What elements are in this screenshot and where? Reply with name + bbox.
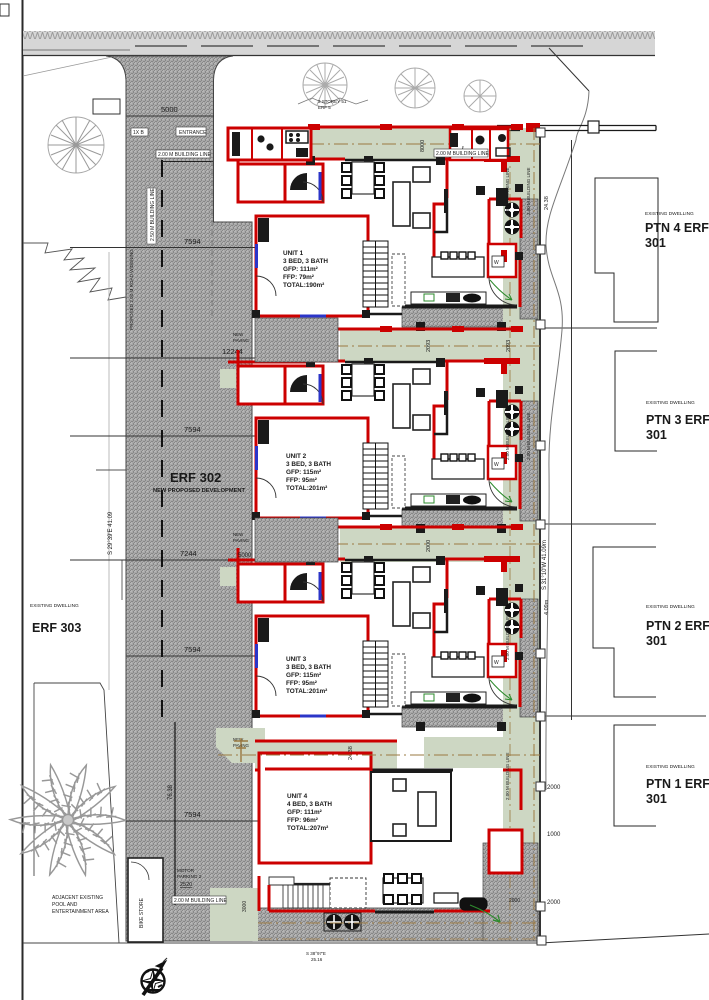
svg-text:3 STOREY 51: 3 STOREY 51 <box>318 99 347 104</box>
svg-text:76.38: 76.38 <box>168 784 174 800</box>
svg-text:TOTAL:190m²: TOTAL:190m² <box>283 282 324 289</box>
svg-text:1000: 1000 <box>547 832 561 838</box>
svg-text:2.00 M BUILDING LINE: 2.00 M BUILDING LINE <box>505 612 510 660</box>
svg-text:PTN 1 ERF: PTN 1 ERF <box>646 777 709 791</box>
svg-text:301: 301 <box>645 236 666 250</box>
svg-text:PARKING 2: PARKING 2 <box>177 874 202 879</box>
svg-text:24.38: 24.38 <box>544 196 550 210</box>
svg-text:3 BED, 3 BATH: 3 BED, 3 BATH <box>283 258 328 265</box>
svg-text:2.00 M BUILDING LINE: 2.00 M BUILDING LINE <box>505 167 510 215</box>
svg-text:3 BED, 3 BATH: 3 BED, 3 BATH <box>286 664 331 671</box>
svg-text:3 BED, 3 BATH: 3 BED, 3 BATH <box>286 461 331 468</box>
svg-text:2.00 M BUILDING LINE: 2.00 M BUILDING LINE <box>505 752 510 800</box>
svg-text:8000: 8000 <box>420 140 426 152</box>
svg-text:25.16: 25.16 <box>311 957 323 962</box>
svg-text:UNIT 3: UNIT 3 <box>286 656 307 663</box>
svg-text:7594: 7594 <box>184 645 201 654</box>
svg-text:ERF 5: ERF 5 <box>318 105 331 110</box>
svg-text:2.00 M BUILDING LINE: 2.00 M BUILDING LINE <box>526 412 531 460</box>
svg-text:2.50 M BUILDING LINE: 2.50 M BUILDING LINE <box>150 188 156 241</box>
svg-text:MOTOR: MOTOR <box>177 868 195 873</box>
svg-text:S 29°39'E 41.09: S 29°39'E 41.09 <box>108 511 114 555</box>
svg-text:7244: 7244 <box>180 549 197 558</box>
svg-text:S 38°97'E: S 38°97'E <box>306 951 326 956</box>
svg-text:PAVING: PAVING <box>233 338 250 343</box>
svg-text:UNIT 4: UNIT 4 <box>287 793 308 800</box>
svg-text:TOTAL:201m²: TOTAL:201m² <box>286 688 327 695</box>
svg-text:FFP: 79m²: FFP: 79m² <box>283 274 314 281</box>
svg-text:3000: 3000 <box>242 901 248 912</box>
svg-text:12244: 12244 <box>222 347 243 356</box>
svg-text:S 31°10'W 41.09m: S 31°10'W 41.09m <box>542 540 548 590</box>
svg-text:2093: 2093 <box>426 340 432 352</box>
svg-text:1X B: 1X B <box>133 130 145 136</box>
svg-text:PTN 3 ERF: PTN 3 ERF <box>646 413 709 427</box>
svg-text:PAVING: PAVING <box>233 538 250 543</box>
svg-text:FFP: 95m²: FFP: 95m² <box>286 477 317 484</box>
svg-text:7594: 7594 <box>184 425 201 434</box>
svg-text:TOTAL:207m²: TOTAL:207m² <box>287 825 328 832</box>
svg-text:GFP: 111m²: GFP: 111m² <box>287 809 322 816</box>
svg-text:PROPOSED 2.00 M ROAD WIDENING: PROPOSED 2.00 M ROAD WIDENING <box>129 249 134 330</box>
svg-text:POOL AND: POOL AND <box>52 902 78 908</box>
svg-text:301: 301 <box>646 428 667 442</box>
svg-text:EXISTING DWELLING: EXISTING DWELLING <box>645 211 694 217</box>
svg-text:24.38: 24.38 <box>348 746 354 760</box>
svg-text:EXISTING DWELLING: EXISTING DWELLING <box>30 603 79 609</box>
svg-text:ERF 302: ERF 302 <box>170 470 221 485</box>
svg-text:GFP: 115m²: GFP: 115m² <box>286 469 321 476</box>
svg-text:4 BED, 3 BATH: 4 BED, 3 BATH <box>287 801 332 808</box>
svg-text:2.00 M BUILDING LINE: 2.00 M BUILDING LINE <box>158 152 211 158</box>
svg-text:5000: 5000 <box>238 553 252 559</box>
svg-text:7594: 7594 <box>184 810 201 819</box>
svg-text:UNIT 2: UNIT 2 <box>286 453 307 460</box>
svg-text:UNIT 1: UNIT 1 <box>283 250 304 257</box>
svg-text:EXISTING DWELLING: EXISTING DWELLING <box>646 764 695 770</box>
svg-text:2000: 2000 <box>426 540 432 552</box>
svg-text:2000: 2000 <box>547 785 561 791</box>
svg-text:2000: 2000 <box>547 900 561 906</box>
svg-text:2.00 M BUILDING LINE: 2.00 M BUILDING LINE <box>505 412 510 460</box>
svg-text:NEW: NEW <box>233 532 244 537</box>
svg-text:NEW PROPOSED DEVELOPMENT: NEW PROPOSED DEVELOPMENT <box>153 488 245 494</box>
svg-text:FFP: 96m²: FFP: 96m² <box>287 817 318 824</box>
svg-text:2.00 M BUILDING LINE: 2.00 M BUILDING LINE <box>436 151 489 157</box>
svg-text:GFP: 115m²: GFP: 115m² <box>286 672 321 679</box>
svg-text:ADJACENT EXISTING: ADJACENT EXISTING <box>52 895 103 901</box>
svg-text:PTN 2 ERF: PTN 2 ERF <box>646 619 709 633</box>
svg-text:GFP: 111m²: GFP: 111m² <box>283 266 318 273</box>
svg-text:2520: 2520 <box>180 882 192 888</box>
svg-text:EXISTING DWELLING: EXISTING DWELLING <box>646 400 695 406</box>
svg-text:W: W <box>494 260 499 266</box>
svg-text:7594: 7594 <box>184 237 201 246</box>
svg-text:301: 301 <box>646 792 667 806</box>
svg-text:NEW: NEW <box>233 332 244 337</box>
svg-text:ERF 303: ERF 303 <box>32 621 81 635</box>
svg-text:PTN 4 ERF: PTN 4 ERF <box>645 221 709 235</box>
svg-text:2000: 2000 <box>509 898 520 904</box>
svg-text:ENTRANCE: ENTRANCE <box>179 130 207 136</box>
svg-text:EXISTING DWELLING: EXISTING DWELLING <box>646 604 695 610</box>
svg-text:TOTAL:201m²: TOTAL:201m² <box>286 485 327 492</box>
svg-text:5000: 5000 <box>161 105 178 114</box>
svg-text:301: 301 <box>646 634 667 648</box>
svg-text:BIKE STORE: BIKE STORE <box>139 897 145 928</box>
svg-text:2093: 2093 <box>506 340 512 352</box>
svg-text:ENTERTAINMENT AREA: ENTERTAINMENT AREA <box>52 909 109 915</box>
svg-text:2.00 M BUILDING LINE: 2.00 M BUILDING LINE <box>526 167 531 215</box>
svg-text:4.09m: 4.09m <box>544 599 550 615</box>
svg-text:FFP: 95m²: FFP: 95m² <box>286 680 317 687</box>
svg-text:2.00 M BUILDING LINE: 2.00 M BUILDING LINE <box>174 898 227 904</box>
